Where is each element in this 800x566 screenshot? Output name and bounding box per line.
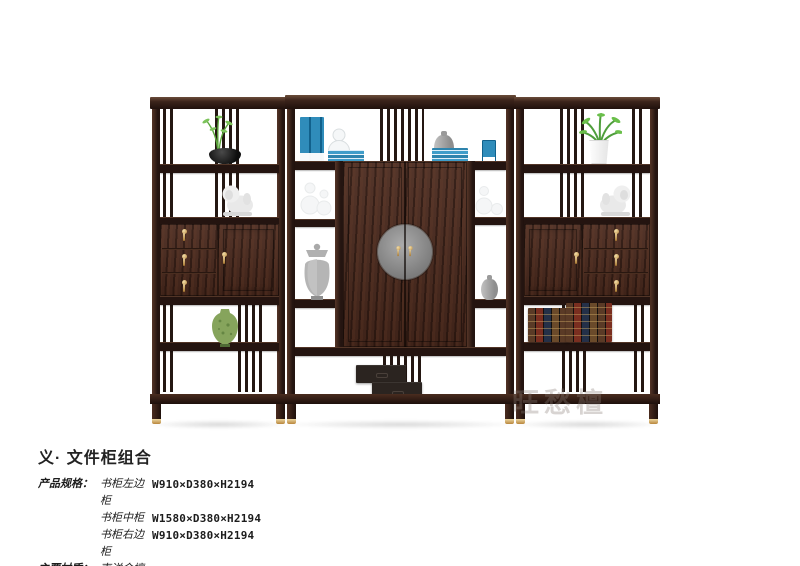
center-cabinet-doors [343, 162, 467, 347]
lion-statue-decor [598, 184, 634, 217]
brand-watermark: 旺愁檀 [512, 381, 608, 420]
door-pull [396, 246, 402, 258]
right-cabinet-unit [514, 95, 660, 425]
shelf-board [524, 342, 650, 351]
slat-screen [163, 109, 174, 164]
black-box-decor [356, 365, 406, 383]
slat-screen [560, 172, 588, 217]
middle-unit-top-rail [285, 95, 516, 109]
spec-item-name: 书柜右边柜 [100, 527, 152, 561]
product-title: 义· 文件柜组合 [38, 444, 261, 468]
spec-item-name: 书柜左边柜 [100, 476, 152, 510]
spec-label-spacer [38, 527, 100, 561]
brass-foot [649, 419, 658, 424]
slat-screen [632, 172, 646, 217]
shelf-board [295, 219, 335, 227]
left-cabinet-unit [150, 95, 287, 425]
door-pull [221, 252, 228, 266]
middle-cabinet-unit [285, 95, 516, 425]
drawer-divider [584, 248, 648, 250]
drawer-pull [181, 254, 188, 268]
spec-label-spacer [38, 510, 100, 527]
leg [152, 404, 161, 420]
spec-item-dims: W1580×D380×H2194 [152, 510, 261, 527]
product-info: 义· 文件柜组合 产品规格： 书柜左边柜 W910×D380×H2194 书柜中… [38, 444, 261, 566]
white-planter-decor [588, 140, 610, 164]
drawer-divider [162, 248, 216, 250]
material-value: 南洋金檀 [100, 561, 144, 566]
drawer-pull [613, 254, 620, 268]
slat-screen [634, 304, 648, 342]
lion-statue-decor [219, 183, 255, 217]
brass-foot [152, 419, 161, 424]
middle-unit-base [285, 394, 516, 404]
slat-screen [163, 304, 174, 342]
middle-unit-right-post [506, 109, 514, 394]
catalog-page: 旺愁檀 义· 文件柜组合 产品规格： 书柜左边柜 W910×D380×H2194… [0, 0, 800, 566]
drawer-divider [584, 272, 648, 274]
leather-books-decor [566, 303, 612, 342]
leg [287, 404, 296, 420]
spec-item-dims: W910×D380×H2194 [152, 476, 254, 510]
slat-screen [634, 350, 648, 392]
brass-foot [276, 419, 285, 424]
left-unit-top-rail [150, 97, 287, 109]
blue-binders-decor [300, 117, 324, 162]
drawer-pull [613, 280, 620, 294]
spec-row: 书柜右边柜 W910×D380×H2194 [38, 527, 261, 561]
leather-books-decor [528, 308, 568, 342]
slat-screen [380, 109, 424, 161]
door-pull [573, 252, 580, 266]
door-frame [467, 161, 475, 351]
slat-screen [632, 109, 646, 164]
small-gray-vase-decor [481, 279, 498, 300]
slat-screen [238, 350, 264, 392]
slat-screen [163, 350, 174, 392]
right-unit-top-rail [514, 97, 660, 109]
door-gap [404, 162, 406, 347]
right-unit-right-post [650, 109, 658, 394]
shelf-board [471, 217, 506, 225]
left-unit-left-post [152, 109, 160, 394]
glass-vases-decor [474, 182, 504, 216]
stacked-books-decor [432, 148, 468, 162]
shelf-board [471, 299, 506, 308]
drawer-pull [613, 229, 620, 243]
material-label: 主要材质： [38, 561, 100, 566]
middle-unit-left-post [287, 109, 295, 394]
leg [649, 404, 658, 420]
shelf-board [524, 164, 650, 173]
shelf-board [160, 296, 279, 305]
slat-screen [163, 172, 174, 217]
brass-foot [287, 419, 296, 424]
right-unit-left-post [516, 109, 524, 394]
spec-row: 书柜中柜 W1580×D380×H2194 [38, 510, 261, 527]
drawer-pull [181, 229, 188, 243]
leg [276, 404, 285, 420]
spec-item-dims: W910×D380×H2194 [152, 527, 254, 561]
material-row: 主要材质： 南洋金檀 [38, 561, 261, 566]
bonsai-plant-decor [192, 112, 244, 152]
temple-jar-decor [300, 243, 334, 301]
slat-screen [238, 304, 264, 342]
spec-row: 产品规格： 书柜左边柜 W910×D380×H2194 [38, 476, 261, 510]
blue-book-decor [482, 140, 496, 163]
left-unit-base [150, 394, 287, 404]
door-frame [335, 161, 343, 351]
left-unit-drawers [160, 224, 218, 296]
drawer-pull [181, 280, 188, 294]
glass-vases-decor [299, 178, 333, 218]
drawer-divider [162, 272, 216, 274]
shelf-board [160, 164, 279, 173]
green-vase-decor [212, 309, 238, 347]
spec-label: 产品规格： [38, 476, 100, 510]
spec-item-name: 书柜中柜 [100, 510, 152, 527]
door-pull [408, 246, 414, 258]
